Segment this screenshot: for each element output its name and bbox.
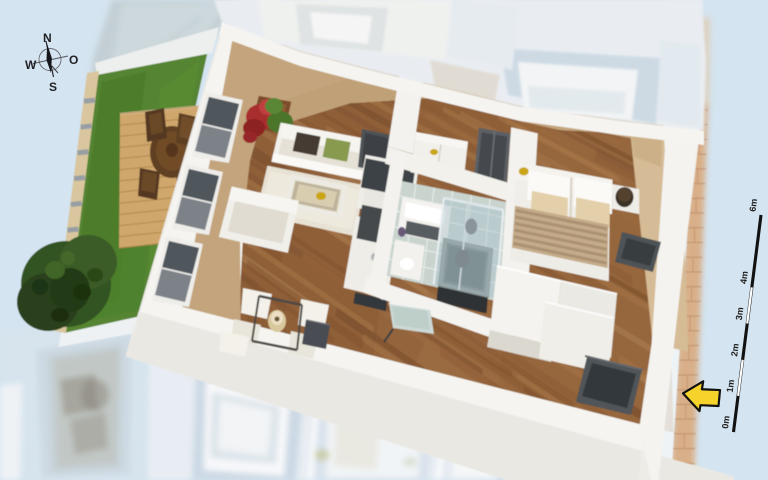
- svg-text:W: W: [25, 58, 37, 72]
- svg-text:3m: 3m: [734, 307, 746, 321]
- svg-text:O: O: [69, 53, 78, 67]
- svg-text:4m: 4m: [738, 270, 750, 284]
- svg-text:2m: 2m: [729, 343, 741, 357]
- svg-text:1m: 1m: [725, 379, 737, 393]
- svg-text:0m: 0m: [720, 415, 732, 429]
- svg-text:N: N: [43, 31, 52, 45]
- svg-text:S: S: [49, 80, 57, 94]
- svg-text:6m: 6m: [748, 198, 760, 212]
